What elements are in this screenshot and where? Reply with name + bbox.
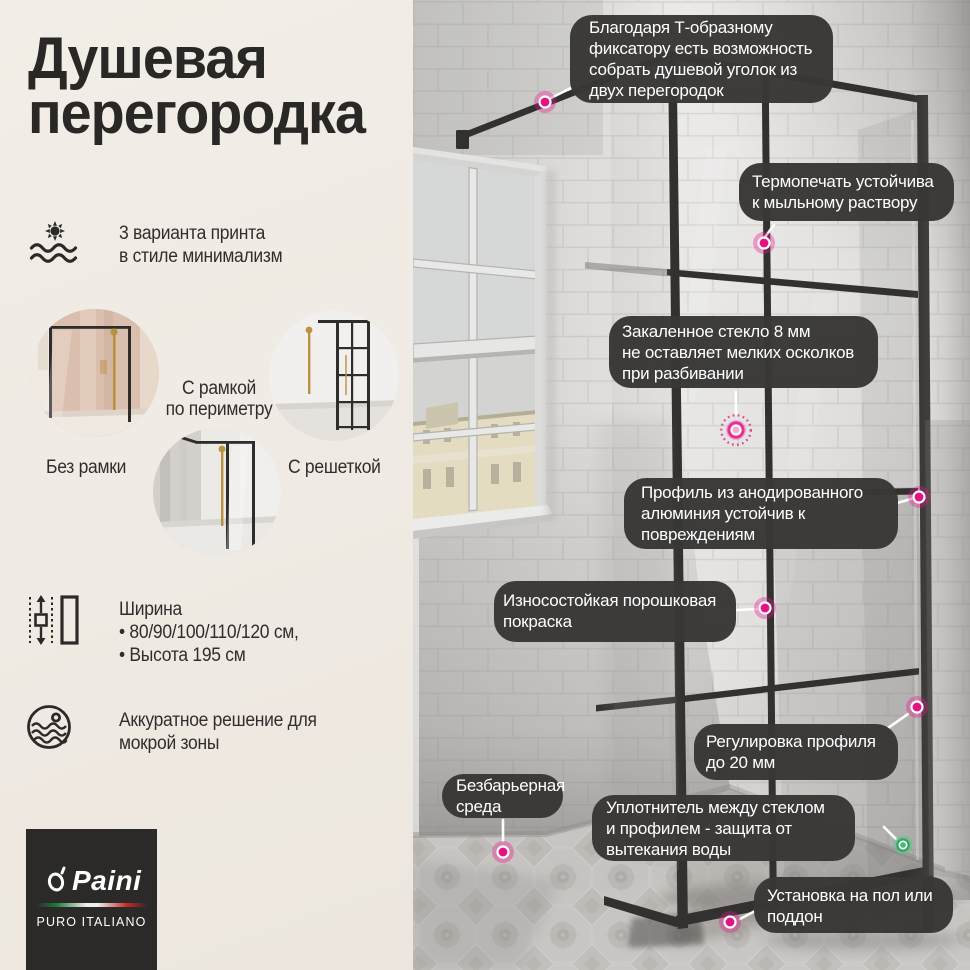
svg-text:Paini: Paini (72, 865, 142, 896)
